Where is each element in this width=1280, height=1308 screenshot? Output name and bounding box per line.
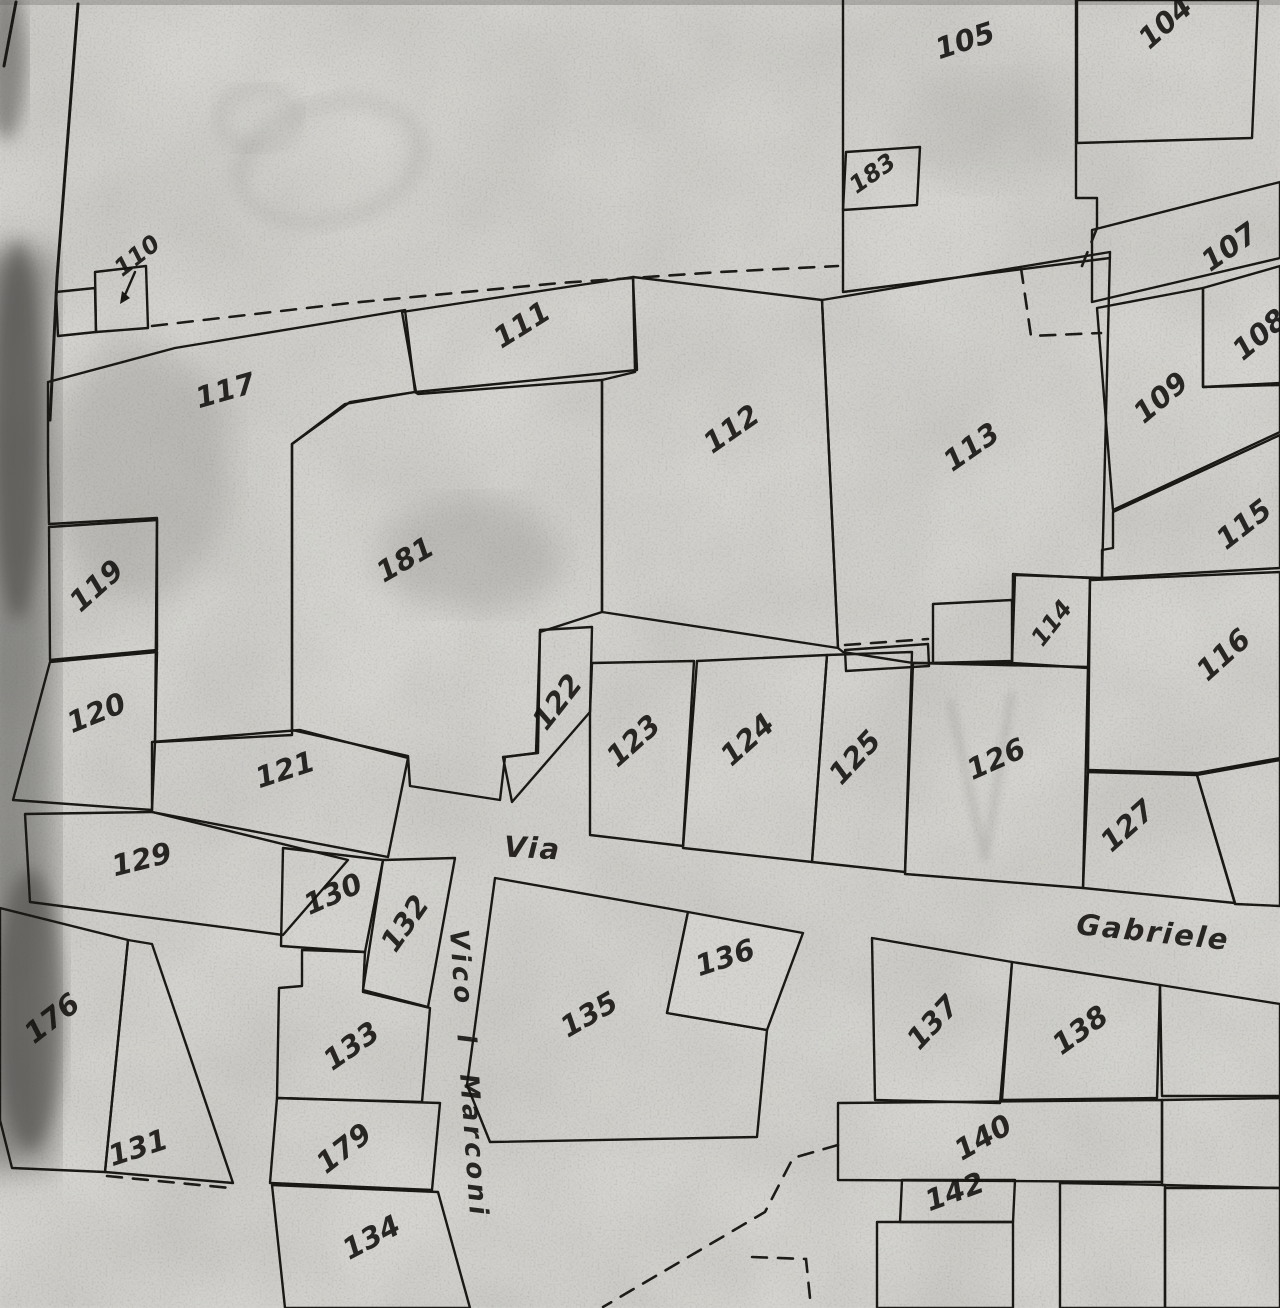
scan-grain <box>0 0 1280 1308</box>
cadastral-map-scan: 104 105 183 107 108 109 110 111 112 113 … <box>0 0 1280 1308</box>
map-canvas: 104 105 183 107 108 109 110 111 112 113 … <box>0 0 1280 1308</box>
